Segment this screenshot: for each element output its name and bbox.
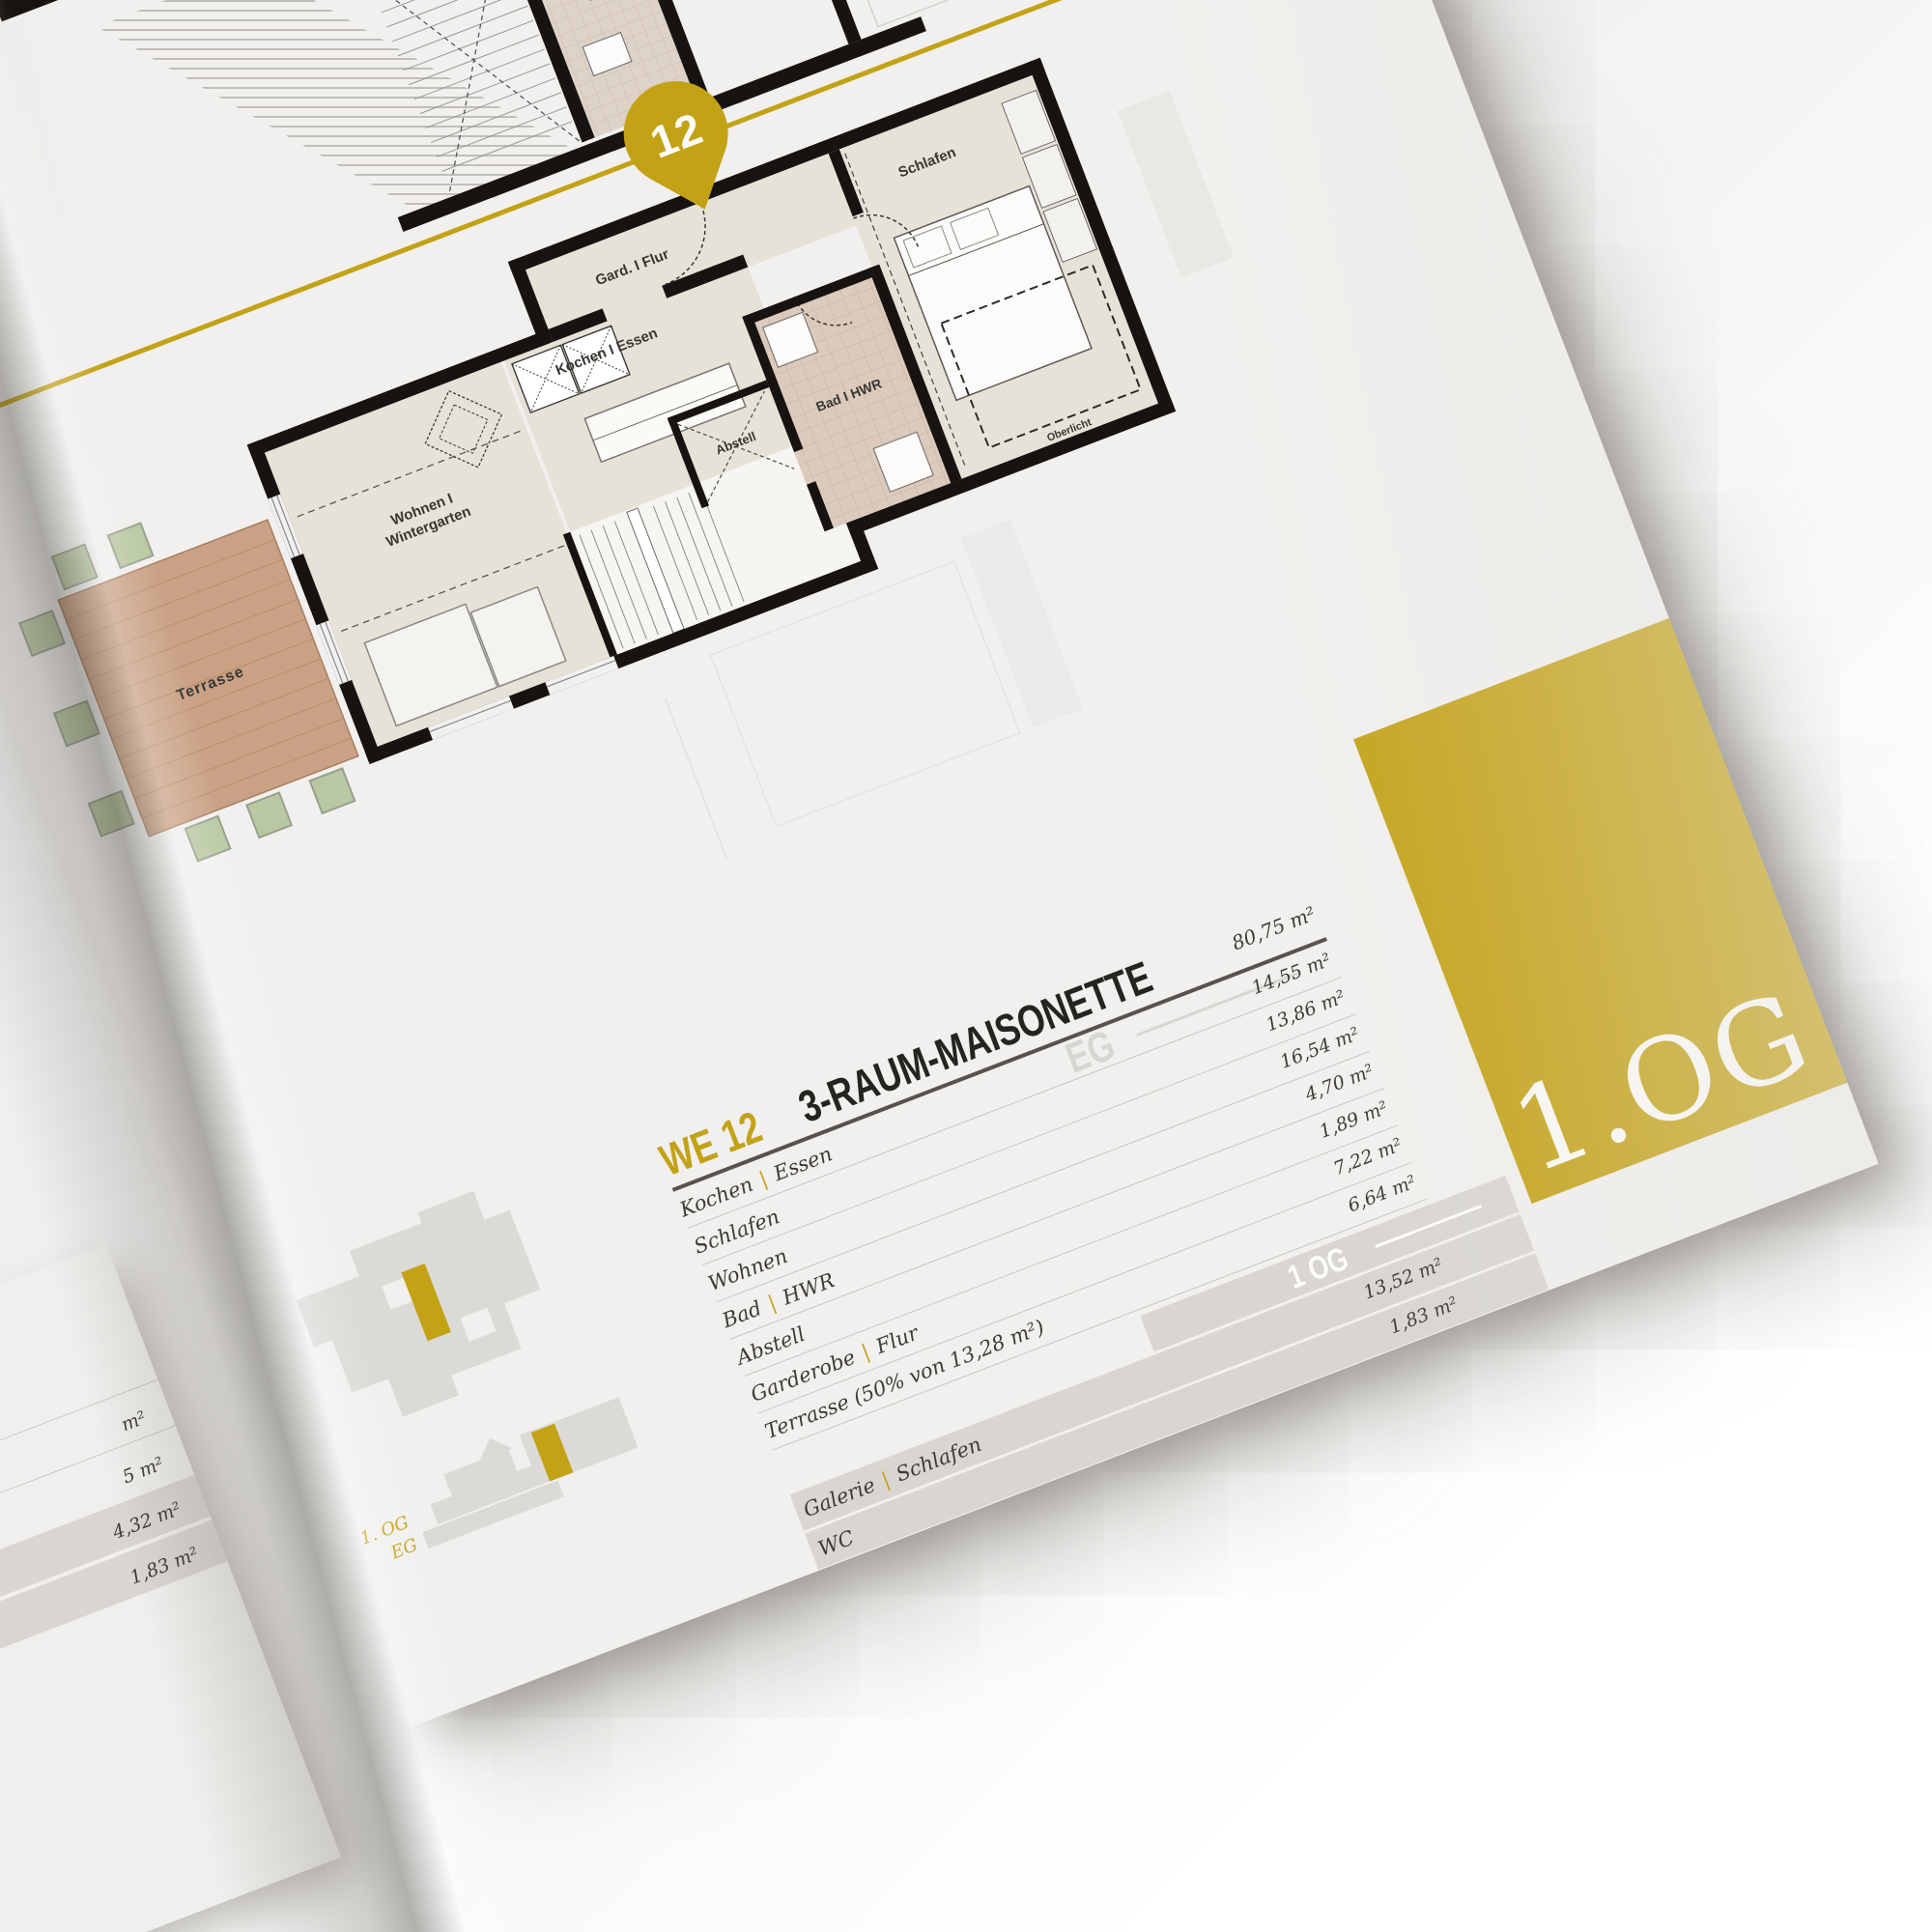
site-diagrams: 1. OG EG (228, 1140, 732, 1612)
area-value: 5 m² (120, 1453, 167, 1488)
left-page-table-fragment: m² 5 m² 4,32 m² 1,83 m² (0, 1379, 228, 1707)
area-value: 1,83 m² (128, 1544, 202, 1589)
brochure-photo: m² 5 m² 4,32 m² 1,83 m² (0, 0, 1932, 1932)
floor-plan: WC (0, 0, 1663, 1173)
area-value: m² (119, 1407, 150, 1436)
unit-area-table: WE 12 3-RAUM-MAISONETTE 80,75 m² EG Koch… (642, 860, 1472, 1570)
main-page: WC (0, 0, 1879, 1731)
floor-badge: 1.OG (1353, 618, 1847, 1204)
roof-hatch (97, 0, 586, 304)
floor-badge-label: 1.OG (1498, 975, 1824, 1190)
